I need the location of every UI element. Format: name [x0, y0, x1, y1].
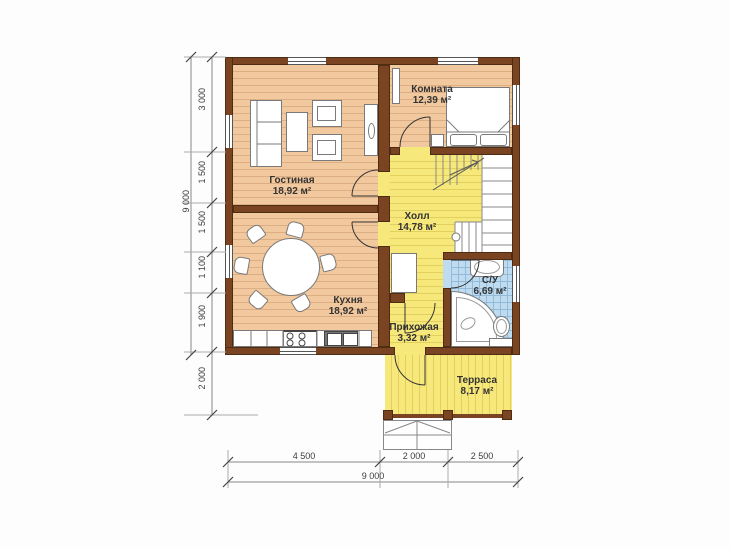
dining-chair: [233, 256, 251, 275]
dim-bottom-segment: 4 500: [284, 451, 324, 461]
dim-left-segment: 2 000: [197, 367, 207, 390]
room-area: 18,92 м²: [252, 186, 332, 197]
toilet-tank: [489, 338, 513, 347]
pillow: [450, 134, 477, 146]
room-area: 12,39 м²: [392, 95, 472, 106]
sofa: [250, 100, 282, 167]
floor-plan: Комната 12,39 м² Гостиная 18,92 м² Холл …: [0, 0, 730, 548]
terrace-post: [383, 410, 393, 420]
staircase-main-run: [482, 155, 512, 252]
tv-cabinet: [364, 104, 378, 156]
dim-left-total: 9 000: [181, 190, 191, 213]
wall: [430, 147, 512, 155]
dining-table: [262, 238, 320, 296]
pillow: [480, 134, 507, 146]
window: [288, 57, 326, 65]
room-label-kitchen: Кухня 18,92 м²: [308, 295, 388, 317]
room-area: 18,92 м²: [308, 306, 388, 317]
room-area: 6,69 м²: [450, 286, 530, 297]
room-name: Прихожая: [374, 322, 454, 333]
doorway-bedroom: [400, 147, 430, 155]
room-name: Холл: [377, 211, 457, 222]
room-area: 3,32 м²: [374, 333, 454, 344]
dim-bottom-total: 9 000: [353, 471, 393, 481]
room-area: 8,17 м²: [437, 386, 517, 397]
window: [225, 115, 233, 148]
wall: [390, 147, 400, 155]
dim-bottom-segment: 2 000: [394, 451, 434, 461]
coffee-table: [286, 112, 308, 152]
terrace-post: [502, 410, 512, 420]
room-name: Гостиная: [252, 175, 332, 186]
dim-left-segment: 1 500: [197, 161, 207, 184]
terrace-steps: [383, 420, 452, 450]
kitchen-sink: [324, 331, 358, 346]
doorway-living: [378, 172, 390, 196]
dim-bottom-segment: 2 500: [462, 451, 502, 461]
armchair-seat: [317, 106, 336, 121]
nightstand: [431, 134, 444, 147]
room-label-bathroom: С/У 6,69 м²: [450, 275, 530, 297]
wall: [378, 65, 390, 172]
hall-wardrobe: [391, 253, 417, 293]
sink-basin: [327, 333, 342, 346]
tv-cabinet-detail: [368, 123, 375, 139]
dim-left-segment: 1 100: [197, 256, 207, 279]
armchair: [312, 134, 342, 161]
dim-left-segment: 1 500: [197, 211, 207, 234]
armchair: [312, 100, 342, 127]
room-label-living: Гостиная 18,92 м²: [252, 175, 332, 197]
room-name: Комната: [392, 84, 472, 95]
room-label-entry: Прихожая 3,32 м²: [374, 322, 454, 344]
wall: [225, 57, 233, 355]
wall: [443, 252, 512, 260]
sink-drainboard: [343, 333, 358, 346]
wall: [390, 293, 405, 303]
toilet-bowl: [493, 316, 510, 337]
room-label-terrace: Терраса 8,17 м²: [437, 375, 517, 397]
staircase-lower-run: [455, 222, 482, 252]
window: [438, 57, 478, 65]
window: [225, 245, 233, 278]
terrace-post: [443, 410, 453, 420]
window: [280, 347, 316, 355]
bathroom-sink-basin: [474, 260, 500, 274]
room-area: 14,78 м²: [377, 222, 457, 233]
room-name: Кухня: [308, 295, 388, 306]
doorway-terrace: [395, 347, 425, 355]
wall: [425, 347, 512, 355]
window: [512, 85, 520, 125]
wall: [233, 205, 378, 213]
dim-left-segment: 1 900: [197, 305, 207, 328]
armchair-seat: [317, 140, 336, 155]
room-name: С/У: [450, 275, 530, 286]
dim-left-segment: 3 000: [197, 88, 207, 111]
toilet-bowl-inner: [496, 319, 507, 334]
room-name: Терраса: [437, 375, 517, 386]
room-label-bedroom: Комната 12,39 м²: [392, 84, 472, 106]
room-label-hall: Холл 14,78 м²: [377, 211, 457, 233]
stove: [283, 330, 317, 347]
